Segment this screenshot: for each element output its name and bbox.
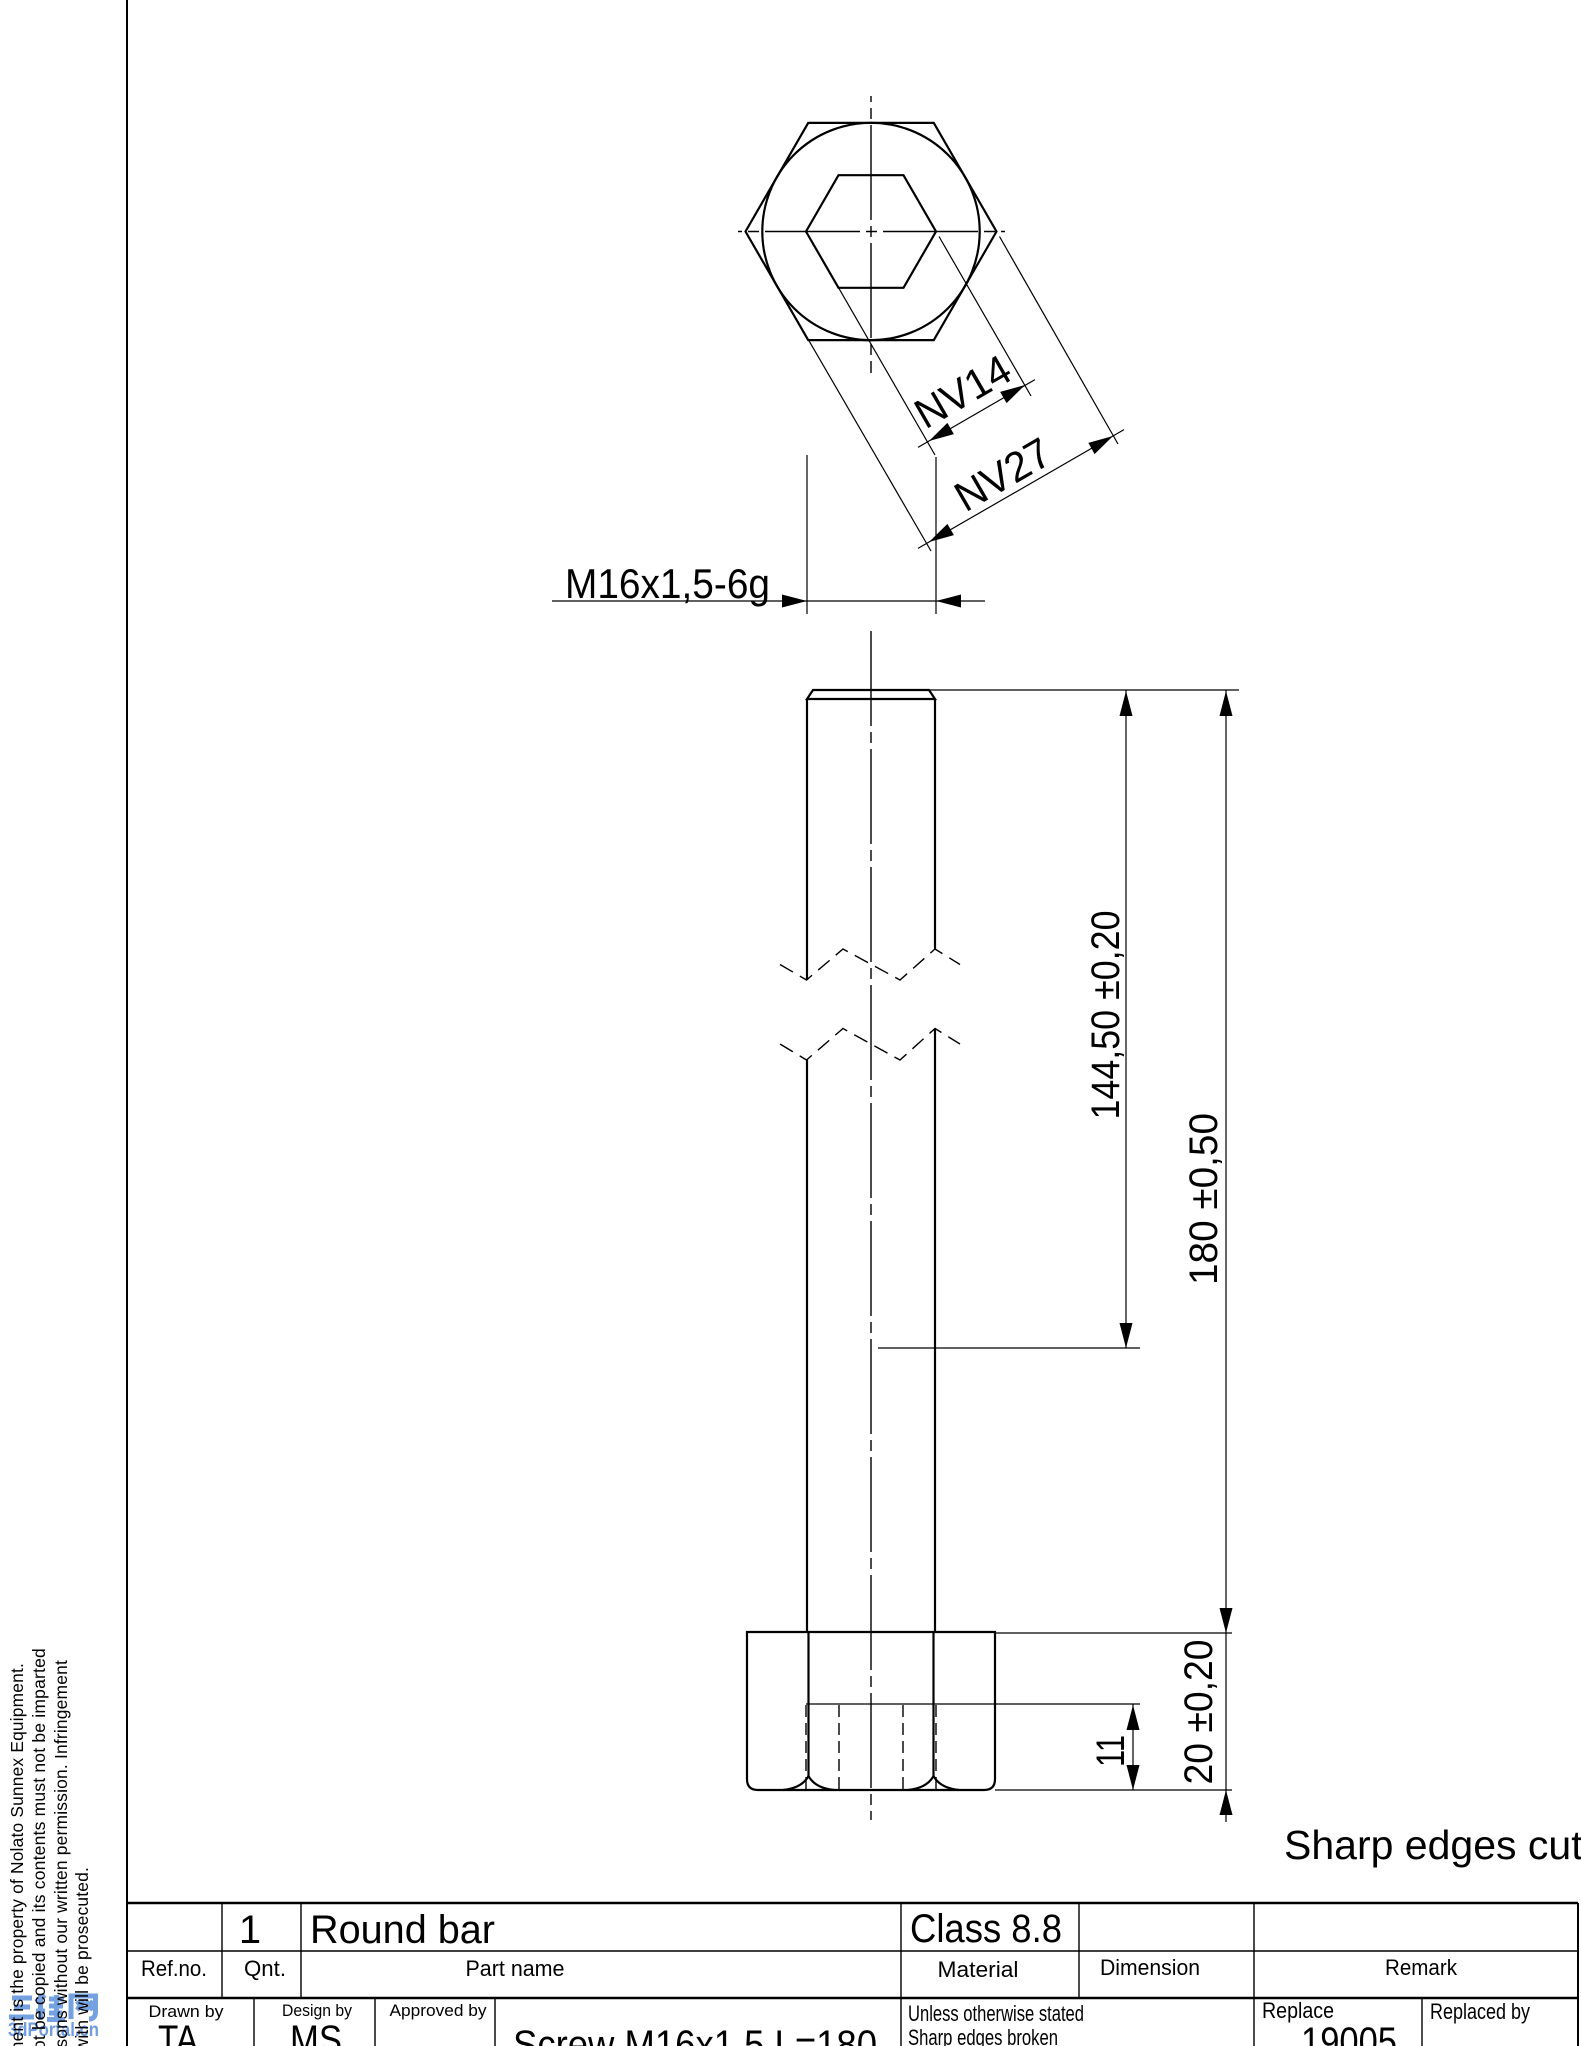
svg-text:Dimension: Dimension xyxy=(1100,1955,1200,1980)
svg-text:20 ±0,20: 20 ±0,20 xyxy=(1177,1640,1221,1785)
svg-text:TA: TA xyxy=(158,2018,198,2046)
svg-text:herewith will be prosecuted.: herewith will be prosecuted. xyxy=(72,1867,92,2046)
svg-text:to other persons without our w: to other persons without our written per… xyxy=(51,1660,71,2046)
svg-text:Sharp edges broken: Sharp edges broken xyxy=(908,2025,1058,2046)
svg-text:11: 11 xyxy=(1089,1735,1133,1767)
svg-text:Round bar: Round bar xyxy=(310,1908,495,1952)
svg-text:Screw M16x1,5 L=180: Screw M16x1,5 L=180 xyxy=(513,2023,877,2046)
svg-text:It must not be copied and its: It must not be copied and its contents m… xyxy=(29,1648,49,2046)
svg-text:Unless otherwise stated: Unless otherwise stated xyxy=(908,2001,1084,2026)
svg-text:19005: 19005 xyxy=(1301,2020,1397,2046)
svg-text:Sharp edges cut: Sharp edges cut xyxy=(1284,1822,1581,1868)
svg-text:M16x1,5-6g: M16x1,5-6g xyxy=(565,560,770,607)
svg-text:Class 8.8: Class 8.8 xyxy=(910,1907,1062,1951)
svg-text:This document is the property: This document is the property of Nolato … xyxy=(7,1663,27,2046)
svg-text:Approved by: Approved by xyxy=(390,2002,488,2020)
svg-text:Remark: Remark xyxy=(1385,1955,1458,1980)
svg-text:Qnt.: Qnt. xyxy=(244,1956,286,1981)
svg-text:Material: Material xyxy=(938,1957,1019,1982)
svg-text:144,50 ±0,20: 144,50 ±0,20 xyxy=(1084,911,1128,1120)
svg-text:Part name: Part name xyxy=(466,1956,565,1981)
svg-text:Ref.no.: Ref.no. xyxy=(141,1956,207,1981)
svg-text:Replaced by: Replaced by xyxy=(1430,1999,1530,2024)
svg-text:180 ±0,50: 180 ±0,50 xyxy=(1182,1113,1226,1285)
svg-text:1: 1 xyxy=(239,1908,261,1952)
svg-text:MS: MS xyxy=(290,2018,342,2046)
